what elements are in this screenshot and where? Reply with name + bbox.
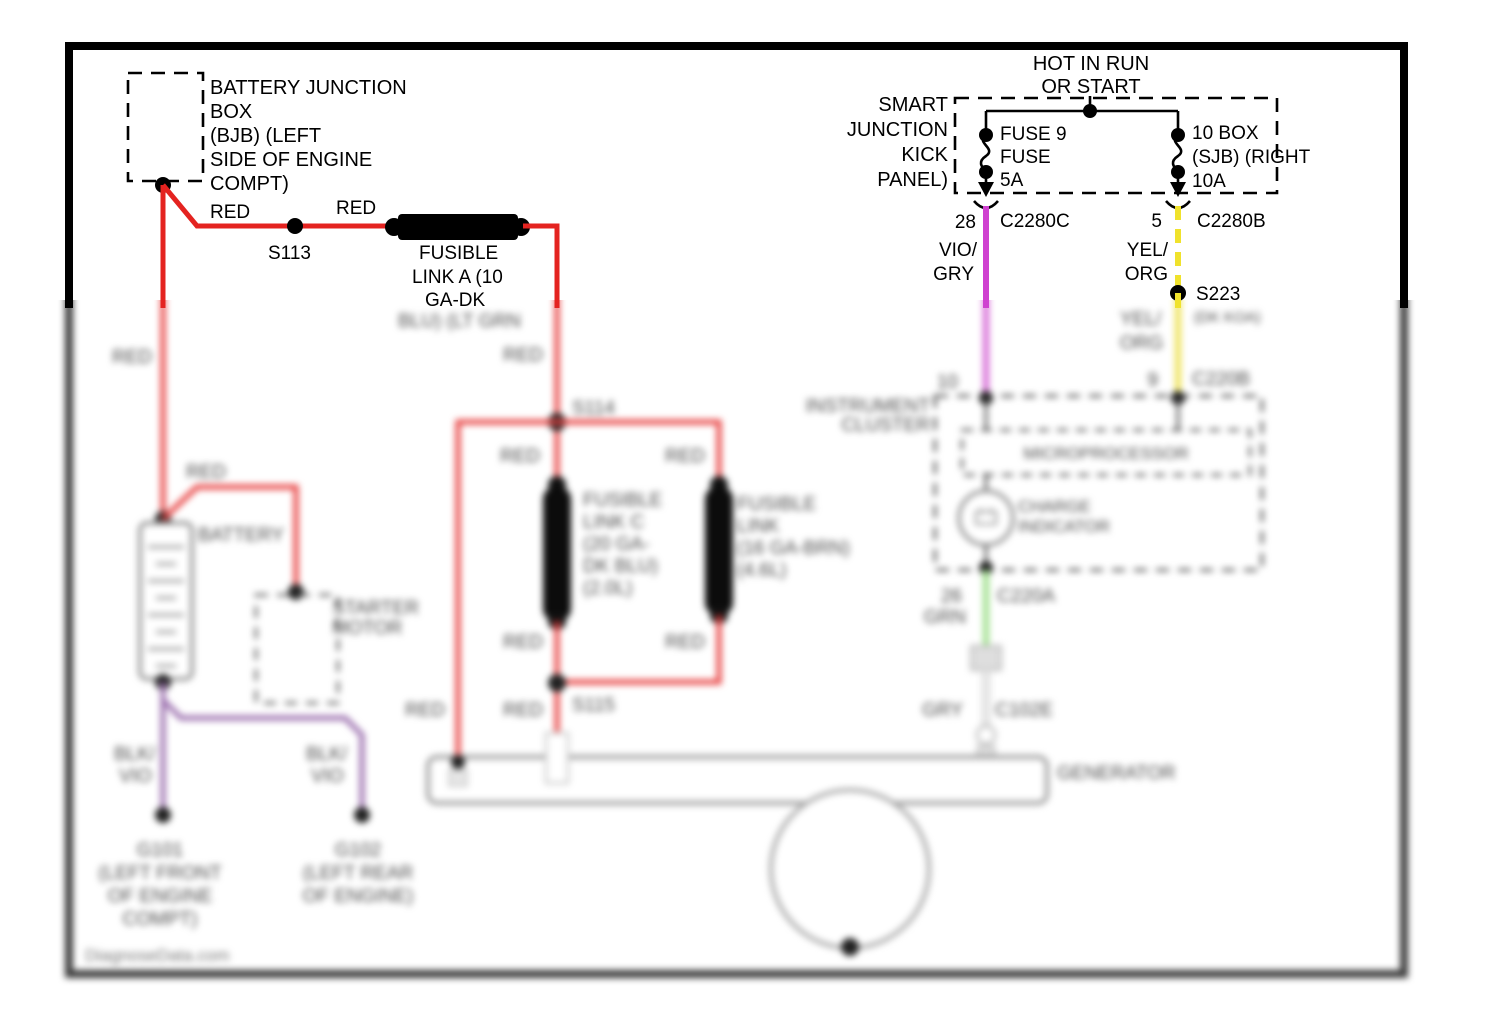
power-source-label: OR START: [1041, 76, 1140, 98]
generator-terminal-stub-left: [449, 770, 467, 786]
cluster-pin26-label: 26: [941, 586, 962, 607]
wire-label-yelorg: ORG: [1120, 333, 1163, 354]
fusible-link-a-label: FUSIBLE: [419, 243, 498, 264]
wire-label-red: RED: [112, 347, 152, 368]
charge-indicator-symbol: [959, 491, 1013, 545]
starter-motor-label: STARTER: [332, 598, 419, 619]
ground-g102-label: OF ENGINE): [303, 886, 414, 907]
wire-label-red: RED: [500, 446, 540, 467]
power-source-label: HOT IN RUN: [1033, 53, 1149, 75]
wire-label-yelorg: YEL/: [1120, 309, 1162, 330]
cluster-pin9-label: 9: [1147, 370, 1158, 391]
splice-s114-label: S114: [572, 398, 615, 419]
instrument-cluster-label: INSTRUMENT: [805, 396, 930, 417]
ground-g101-label: OF ENGINE: [108, 886, 213, 907]
splice-dot-s115: [548, 674, 566, 692]
splice-s223-label: S223: [1196, 284, 1240, 305]
charge-indicator-label: INDICATOR: [1018, 517, 1110, 536]
wire-label-red: RED: [210, 202, 250, 223]
wire-label-viogry: VIO/: [939, 240, 978, 261]
generator-connector-center: [546, 733, 568, 783]
fuse9-label: 5A: [1000, 170, 1024, 191]
ground-g102-label: G102: [335, 840, 381, 861]
splice-s115-label: S115: [572, 695, 615, 716]
bjb-label: COMPT): [210, 173, 289, 195]
generator-terminal-dot-left: [451, 755, 465, 769]
wire-label-red: RED: [665, 632, 705, 653]
sjb-left-label: KICK: [901, 144, 948, 166]
wire-label-blkvio: BLK/: [114, 744, 156, 765]
wire-label-red: RED: [405, 700, 445, 721]
wire-label-red: RED: [503, 345, 543, 366]
battery-label: BATTERY: [198, 525, 284, 546]
splice-dot-s113: [287, 218, 303, 234]
ground-g101-label: G101: [137, 840, 183, 861]
ground-dot-right: [354, 807, 370, 823]
wire-label-viogry: GRY: [933, 264, 974, 285]
fuse9-label: FUSE 9: [1000, 124, 1067, 145]
ground-dot-left: [155, 807, 171, 823]
fusible-link-c-label: DK BLU): [583, 556, 658, 577]
wire-label-red: RED: [503, 700, 543, 721]
fusible-link-c-label: (2.0L): [583, 578, 633, 599]
connector-c2280b-label: C2280B: [1197, 211, 1266, 232]
inline-connector-symbol: [971, 646, 1001, 670]
bjb-label: SIDE OF ENGINE: [210, 149, 372, 171]
starter-motor-label: MOTOR: [332, 618, 402, 639]
wire-label-yelorg: ORG: [1125, 264, 1168, 285]
fusible-link-a-symbol: [398, 214, 518, 240]
splice-s113-label: S113: [268, 243, 311, 264]
pin28-label: 28: [955, 212, 976, 233]
wire-label-blkvio: BLK/: [306, 744, 348, 765]
cluster-pin10-label: 10: [937, 372, 958, 393]
fusible-link-b-label: FUSIBLE: [737, 494, 816, 515]
bjb-label: BATTERY JUNCTION: [210, 77, 407, 99]
fusible-link-a-label: GA-DK: [425, 290, 486, 311]
microprocessor-label: MICROPROCESSOR: [1023, 444, 1188, 463]
generator-ground-dot: [841, 938, 859, 956]
fuse10-label: 10A: [1192, 171, 1226, 192]
fusible-link-a-label-cont: BLU) (LT GRN: [398, 311, 521, 332]
watermark-text: DiagnoseData.com: [85, 946, 230, 965]
ground-g101-label: COMPT): [123, 909, 198, 930]
ring-connector-symbol: [977, 726, 995, 744]
wiring-diagram-page: RED BATTERY RED STARTER MOTOR: [0, 0, 1500, 1024]
ground-g101-label: (LEFT FRONT: [98, 863, 222, 884]
wire-label-blkvio: VIO: [119, 766, 152, 787]
fusible-link-b-label: (16 GA-BRN): [737, 538, 850, 559]
bjb-label: (BJB) (LEFT: [210, 125, 321, 147]
connector-c2280c-label: C2280C: [1000, 211, 1070, 232]
fuse10-label: 10 BOX: [1192, 123, 1259, 144]
wire-label-red: RED: [336, 198, 376, 219]
wire-label-gry: GRY: [922, 700, 963, 721]
fusible-link-a-label: LINK A (10: [412, 267, 503, 288]
fusible-link-b-label: LINK: [737, 516, 780, 537]
fusible-link-c-label: (20 GA-: [583, 534, 650, 555]
fusible-link-c-label: LINK C: [583, 512, 644, 533]
sjb-left-label: PANEL): [877, 169, 948, 191]
ground-g102-label: (LEFT REAR: [303, 863, 414, 884]
sjb-left-label: JUNCTION: [847, 119, 948, 141]
charging-system-wiring-diagram: RED BATTERY RED STARTER MOTOR: [0, 0, 1500, 1024]
pin5-label: 5: [1151, 211, 1162, 232]
fuse9-label: FUSE: [1000, 147, 1051, 168]
junction-dot-starter: [288, 584, 304, 600]
fusible-link-c-symbol: [543, 487, 571, 621]
fusible-link-b-symbol: [705, 487, 733, 615]
connector-c220a-label: C220A: [997, 586, 1055, 607]
connector-c220b-label: C220B: [1192, 369, 1250, 390]
wire-label-red: RED: [665, 446, 705, 467]
fusible-link-b-label: (4.6L): [737, 560, 787, 581]
wire-note-label: (DK KOA): [1194, 309, 1261, 326]
bjb-label: BOX: [210, 101, 252, 123]
generator-circle: [771, 790, 929, 948]
wire-label-grn: GRN: [924, 607, 966, 628]
generator-label: GENERATOR: [1057, 763, 1176, 784]
wire-label-red: RED: [503, 632, 543, 653]
connector-c102e-label: C102E: [995, 700, 1053, 721]
wire-label-red: RED: [186, 462, 226, 483]
fuse10-label: (SJB) (RIGHT: [1192, 147, 1311, 168]
generator-box: [428, 757, 1047, 803]
fusible-link-c-label: FUSIBLE: [583, 490, 662, 511]
wire-label-yelorg: YEL/: [1127, 240, 1169, 261]
charge-indicator-label: CHARGE: [1018, 497, 1091, 516]
instrument-cluster-label: CLUSTER: [841, 415, 930, 436]
sjb-left-label: SMART: [878, 94, 948, 116]
wire-label-blkvio: VIO: [311, 766, 344, 787]
